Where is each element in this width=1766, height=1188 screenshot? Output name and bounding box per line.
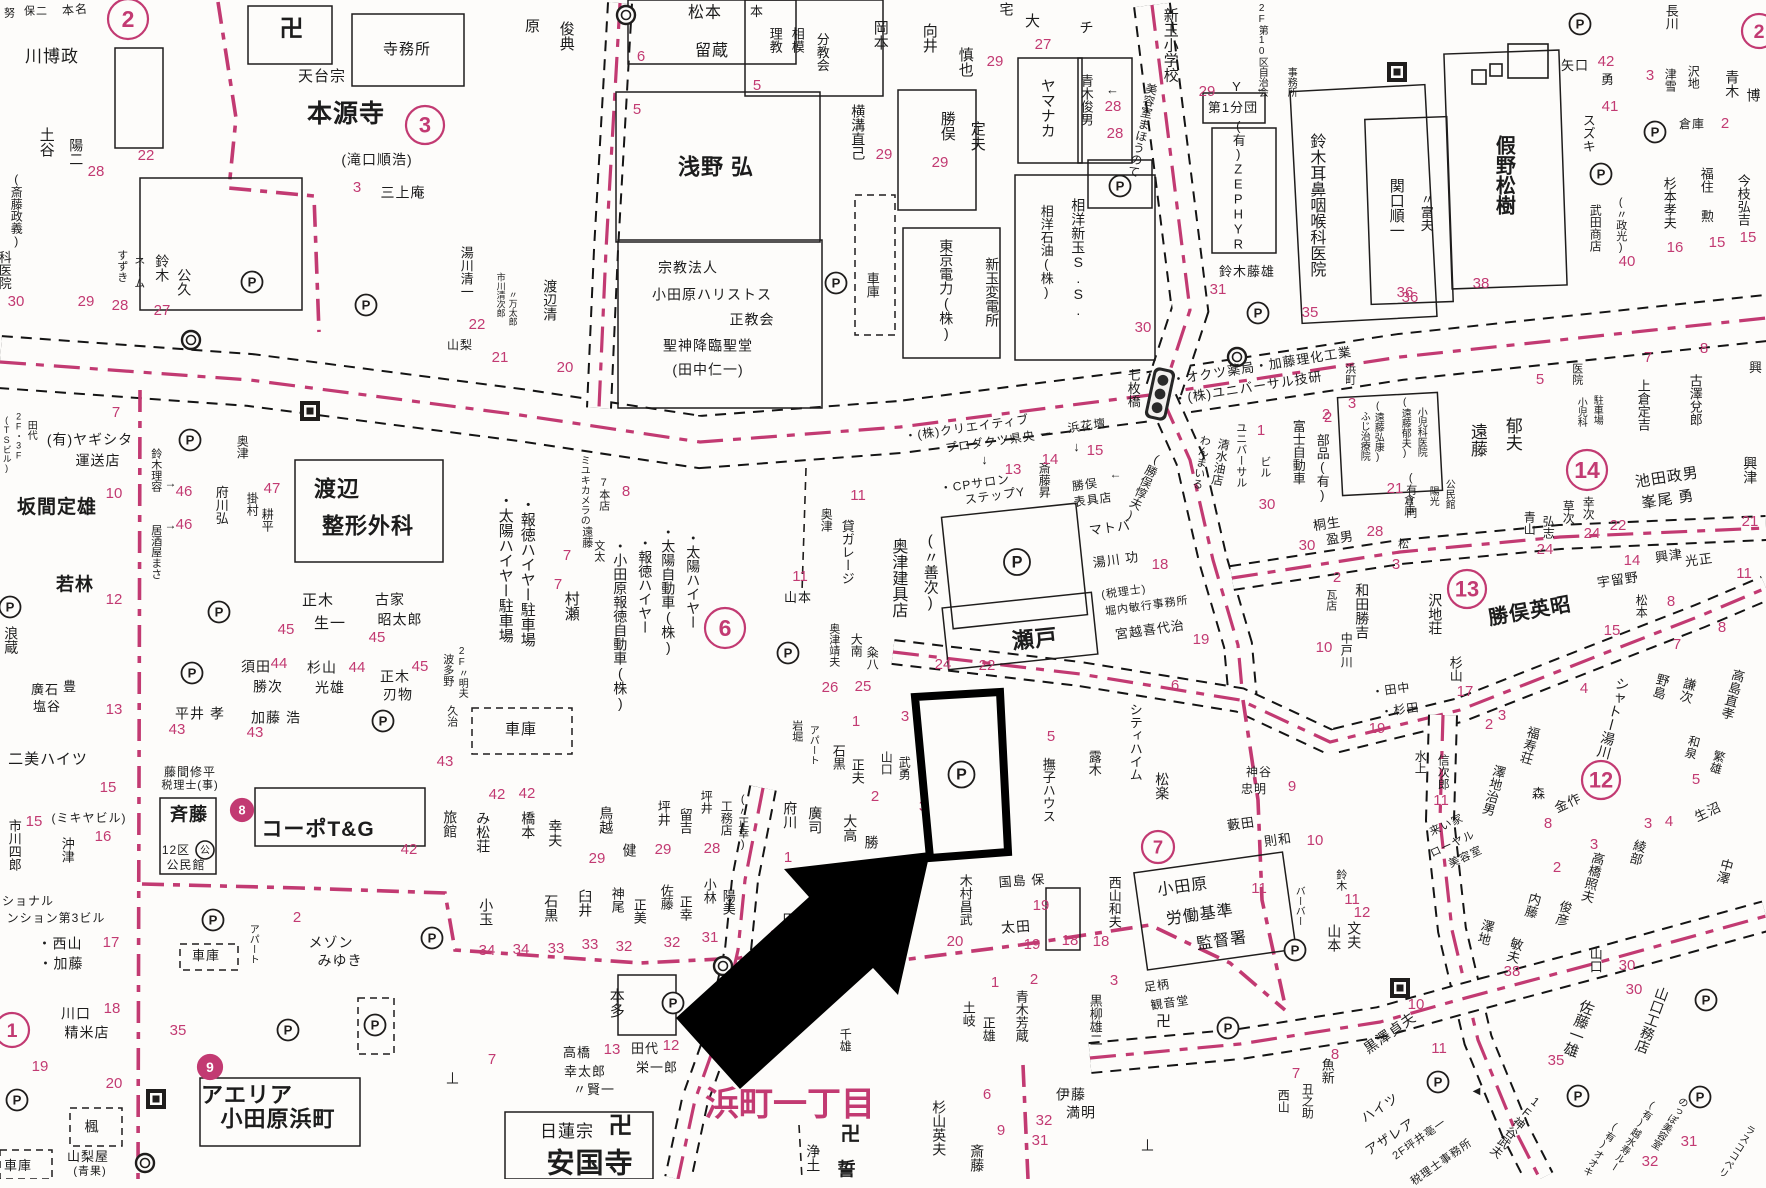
parking-icon: P [956,767,967,784]
highlight-arrow [676,852,930,1089]
map-overlay: P [0,0,1766,1179]
map-canvas: 公PPPPPPPPPPPPPPPPPPPPPPPPPPPP23678911213… [0,0,1766,1179]
